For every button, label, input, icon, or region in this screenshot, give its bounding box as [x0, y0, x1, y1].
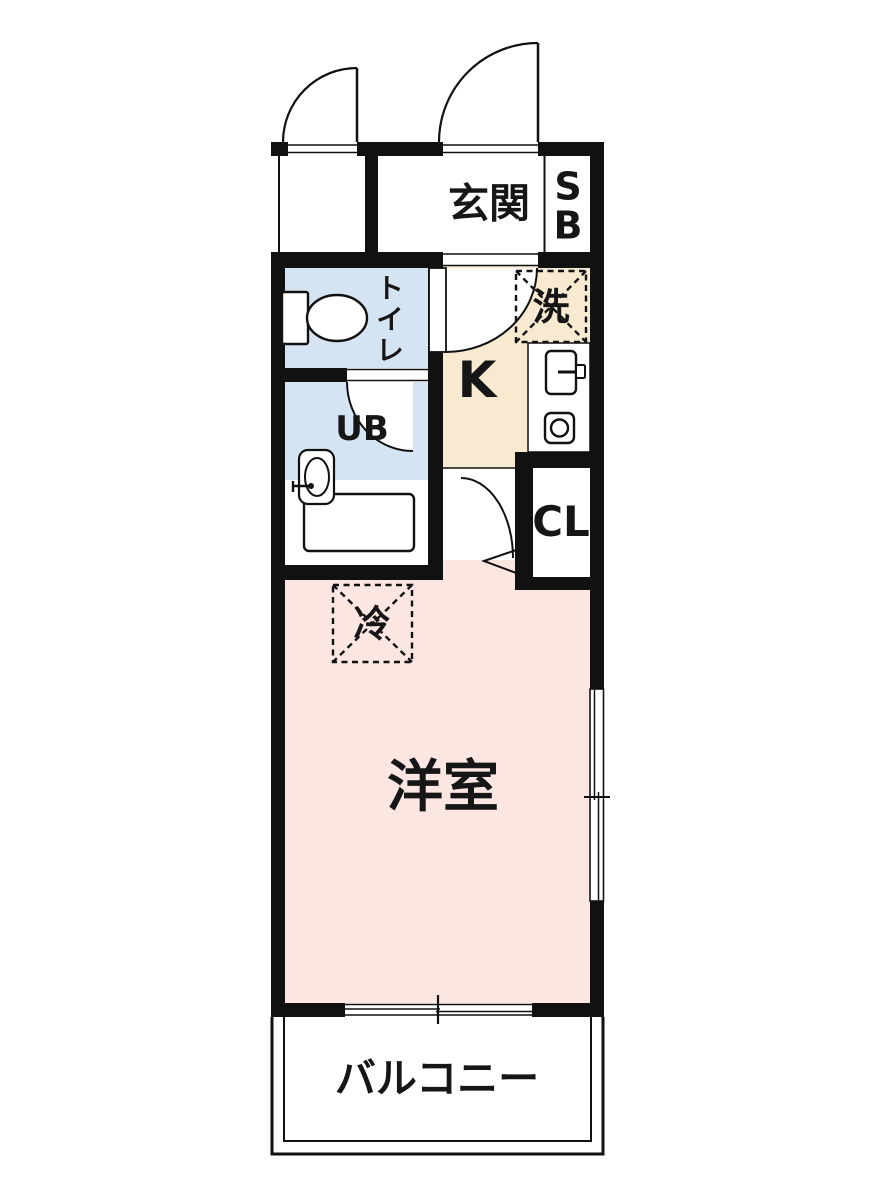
meter-box-door-arc — [283, 68, 357, 142]
label-entrance: 玄関 — [448, 184, 530, 225]
kitchen-faucet-base-icon — [576, 365, 585, 378]
wall-bottom-right — [532, 1003, 604, 1017]
floor-plan: 玄関 SB トイレ 洗 K UB CL 冷 洋室 バルコニー — [0, 0, 880, 1200]
toilet-tank-icon — [282, 292, 308, 344]
label-shoe-box: SB — [553, 167, 583, 245]
label-closet: CL — [532, 501, 590, 543]
wall-closet-left — [515, 452, 533, 590]
wall-bottom-left — [271, 1003, 345, 1017]
label-toilet: トイレ — [374, 274, 402, 367]
toilet-bowl-icon — [307, 295, 367, 341]
label-kitchen: K — [458, 355, 497, 405]
washbasin-drain-icon — [308, 483, 314, 489]
wall-bath-bottom — [271, 565, 443, 580]
wall-toilet-bath-divider — [284, 368, 347, 382]
floor-plan-drawing — [0, 0, 880, 1200]
label-western-room: 洋室 — [387, 760, 499, 816]
entrance-door-arc — [439, 43, 538, 142]
wall-closet-bottom — [515, 577, 604, 590]
wall-left — [271, 252, 285, 1017]
label-washer: 洗 — [533, 289, 570, 326]
washbasin-bowl-icon — [305, 458, 329, 496]
kitchen-door-leaf — [429, 268, 446, 352]
wall-entrance-divider — [365, 142, 378, 268]
wall-sb-bottom — [538, 252, 604, 268]
label-balcony: バルコニー — [335, 1059, 539, 1100]
label-unit-bath: UB — [335, 412, 389, 446]
label-refrigerator: 冷 — [354, 606, 391, 643]
wall-entrance-bottom — [271, 252, 443, 268]
stove-burner-icon — [551, 420, 568, 437]
right-window — [590, 689, 604, 901]
